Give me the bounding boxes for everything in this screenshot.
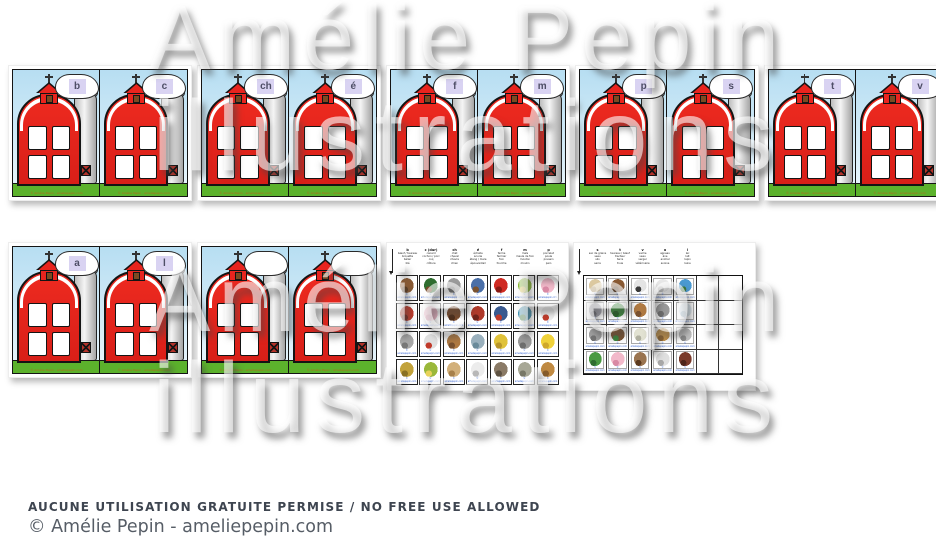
card-copyright: © Amélie Pepin - ameliepepin.com bbox=[289, 368, 376, 372]
barn-letter-card: f © Amélie Pepin - ameliepepin.com bbox=[390, 69, 479, 197]
picture-copyright: © ameliepepin.com bbox=[514, 293, 534, 299]
picture-cell: © ameliepepin.com bbox=[584, 350, 607, 375]
weathervane-icon bbox=[237, 74, 239, 83]
cloud-icon: ch bbox=[244, 74, 288, 99]
barn-letter-card: a © Amélie Pepin - ameliepepin.com bbox=[12, 246, 101, 374]
sound-word: vétérinaire bbox=[631, 262, 654, 265]
window bbox=[328, 303, 347, 327]
picture-cell: © ameliepepin.com bbox=[466, 303, 488, 329]
barn-icon bbox=[395, 94, 459, 186]
picture-cell: © ameliepepin.com bbox=[584, 325, 607, 350]
window bbox=[139, 332, 158, 356]
picture-cell: © ameliepepin.com bbox=[490, 331, 512, 357]
letter-card-page: p © Amélie Pepin - ameliepepin.com s © A… bbox=[575, 65, 759, 201]
barn-letter-card: l © Amélie Pepin - ameliepepin.com bbox=[99, 246, 188, 374]
barn-icon bbox=[773, 94, 837, 186]
picture-copyright: © ameliepepin.com bbox=[420, 321, 440, 327]
cupola-window bbox=[133, 272, 140, 280]
barn-icon bbox=[206, 94, 270, 186]
picture-cell: © ameliepepin.com bbox=[537, 303, 559, 329]
cupola-wall bbox=[229, 93, 247, 104]
cupola-window bbox=[700, 95, 707, 103]
author-credit: © Amélie Pepin - ameliepepin.com bbox=[28, 517, 540, 537]
picture-cell: © ameliepepin.com bbox=[674, 325, 697, 350]
letter-chip: p bbox=[635, 79, 652, 94]
letter-chip: m bbox=[534, 79, 551, 94]
empty-cell bbox=[719, 301, 742, 326]
empty-cell bbox=[697, 325, 720, 350]
window bbox=[52, 303, 71, 327]
picture-copyright: © ameliepepin.com bbox=[629, 366, 651, 372]
empty-cell bbox=[697, 276, 720, 301]
letter-chip: t bbox=[824, 79, 841, 94]
window bbox=[682, 126, 701, 150]
picture-cell: © ameliepepin.com bbox=[674, 301, 697, 326]
picture-cell: © ameliepepin.com bbox=[629, 350, 652, 375]
barn-windows bbox=[406, 126, 448, 179]
sound-column-header: chchatchevalchèvrechien bbox=[443, 248, 467, 271]
barn-windows bbox=[784, 126, 826, 179]
window bbox=[115, 303, 134, 327]
cloud-icon: f bbox=[433, 74, 477, 99]
barn-icon bbox=[293, 271, 357, 363]
sound-word: blé bbox=[396, 262, 420, 265]
activity-sheets-row: a © Amélie Pepin - ameliepepin.com l © A… bbox=[8, 242, 756, 391]
silo-hatch bbox=[924, 165, 934, 176]
card-copyright: © Amélie Pepin - ameliepepin.com bbox=[391, 191, 478, 195]
window bbox=[304, 155, 323, 179]
cloud-icon: l bbox=[142, 251, 186, 276]
cloud-icon: p bbox=[622, 74, 666, 99]
letter-chip: s bbox=[723, 79, 740, 94]
empty-cell bbox=[697, 350, 720, 375]
cloud-icon: a bbox=[55, 251, 99, 276]
picture-cell: © ameliepepin.com bbox=[396, 359, 418, 385]
picture-cell: © ameliepepin.com bbox=[674, 350, 697, 375]
picture-copyright: © ameliepepin.com bbox=[538, 349, 558, 355]
window bbox=[139, 126, 158, 150]
barn-icon bbox=[104, 94, 168, 186]
card-copyright: © Amélie Pepin - ameliepepin.com bbox=[289, 191, 376, 195]
cupola-wall bbox=[229, 270, 247, 281]
picture-cell: © ameliepepin.com bbox=[419, 303, 441, 329]
cupola-wall bbox=[40, 270, 58, 281]
silo-hatch bbox=[168, 165, 178, 176]
cupola-wall bbox=[607, 93, 625, 104]
empty-cell bbox=[697, 301, 720, 326]
letter-chip: l bbox=[156, 256, 173, 271]
card-copyright: © Amélie Pepin - ameliepepin.com bbox=[580, 191, 667, 195]
window bbox=[28, 155, 47, 179]
window bbox=[217, 155, 236, 179]
letter-chip: b bbox=[69, 79, 86, 94]
barn-windows bbox=[595, 126, 637, 179]
window bbox=[115, 155, 134, 179]
letter-chip: é bbox=[345, 79, 362, 94]
sound-word: serre bbox=[586, 262, 609, 265]
picture-cell: © ameliepepin.com bbox=[629, 325, 652, 350]
sound-column-header: vvacheveauvergervétérinaire bbox=[631, 248, 654, 271]
letter-chip: c bbox=[156, 79, 173, 94]
picture-cell: © ameliepepin.com bbox=[396, 275, 418, 301]
cloud-icon: t bbox=[811, 74, 855, 99]
window bbox=[28, 126, 47, 150]
picture-cell: © ameliepepin.com bbox=[652, 276, 675, 301]
letter-chip: v bbox=[912, 79, 929, 94]
window bbox=[217, 303, 236, 327]
cupola-wall bbox=[316, 270, 334, 281]
letter-card-page: t © Amélie Pepin - ameliepepin.com v © A… bbox=[764, 65, 936, 201]
barn-letter-card: © Amélie Pepin - ameliepepin.com bbox=[288, 246, 377, 374]
sound-word: laine bbox=[676, 262, 699, 265]
barn-windows bbox=[217, 126, 259, 179]
picture-copyright: © ameliepepin.com bbox=[538, 293, 558, 299]
window bbox=[807, 126, 826, 150]
sound-word: épouvantail bbox=[466, 262, 490, 265]
sound-column-header: mmaïsmeule de foinmoutonmoulin bbox=[513, 248, 537, 271]
picture-cell: © ameliepepin.com bbox=[419, 275, 441, 301]
picture-copyright: © ameliepepin.com bbox=[514, 321, 534, 327]
barn-windows bbox=[493, 126, 535, 179]
window bbox=[895, 126, 914, 150]
picture-cell: © ameliepepin.com bbox=[584, 276, 607, 301]
barn-icon bbox=[860, 94, 924, 186]
sound-column-header: ééchelleécurieétang / mareépouvantail bbox=[466, 248, 490, 271]
window bbox=[217, 332, 236, 356]
letter-chip: f bbox=[446, 79, 463, 94]
barn-letter-card: é © Amélie Pepin - ameliepepin.com bbox=[288, 69, 377, 197]
picture-cell: © ameliepepin.com bbox=[513, 331, 535, 357]
picture-copyright: © ameliepepin.com bbox=[584, 293, 606, 299]
barn-icon bbox=[293, 94, 357, 186]
picture-copyright: © ameliepepin.com bbox=[674, 342, 696, 348]
window bbox=[240, 155, 259, 179]
cut-mark-icon bbox=[392, 249, 397, 273]
cupola-window bbox=[322, 272, 329, 280]
window bbox=[240, 126, 259, 150]
window bbox=[871, 126, 890, 150]
cloud-icon: m bbox=[520, 74, 564, 99]
sound-word: clôture bbox=[419, 262, 443, 265]
cupola-window bbox=[424, 95, 431, 103]
picture-copyright: © ameliepepin.com bbox=[397, 377, 417, 383]
barn-windows bbox=[682, 126, 724, 179]
window bbox=[618, 155, 637, 179]
cupola-window bbox=[235, 95, 242, 103]
sound-columns-header: bbœuf / taureaubrouettebélierbléc (dur)c… bbox=[396, 248, 568, 271]
window bbox=[784, 155, 803, 179]
cut-mark-icon bbox=[579, 249, 584, 273]
barn-windows bbox=[304, 126, 346, 179]
picture-copyright: © ameliepepin.com bbox=[467, 377, 487, 383]
window bbox=[52, 126, 71, 150]
picture-copyright: © ameliepepin.com bbox=[584, 317, 606, 323]
window bbox=[595, 126, 614, 150]
window bbox=[493, 155, 512, 179]
weathervane-icon bbox=[702, 74, 704, 83]
picture-copyright: © ameliepepin.com bbox=[629, 342, 651, 348]
window bbox=[895, 155, 914, 179]
barn-icon bbox=[17, 94, 81, 186]
card-copyright: © Amélie Pepin - ameliepepin.com bbox=[202, 368, 289, 372]
picture-cell: © ameliepepin.com bbox=[490, 275, 512, 301]
picture-cell: © ameliepepin.com bbox=[396, 303, 418, 329]
picture-copyright: © ameliepepin.com bbox=[584, 366, 606, 372]
window bbox=[706, 155, 725, 179]
letter-card-page: b © Amélie Pepin - ameliepepin.com c © A… bbox=[8, 65, 192, 201]
barn-windows bbox=[115, 303, 157, 356]
window bbox=[240, 303, 259, 327]
picture-cell: © ameliepepin.com bbox=[419, 359, 441, 385]
cupola-window bbox=[46, 272, 53, 280]
bingo-grid-sheet: ssac de grainsseausiloserrettaureau / bœ… bbox=[573, 242, 756, 391]
picture-copyright: © ameliepepin.com bbox=[467, 321, 487, 327]
cupola-wall bbox=[418, 93, 436, 104]
barn-letter-card: s © Amélie Pepin - ameliepepin.com bbox=[666, 69, 755, 197]
cupola-window bbox=[889, 95, 896, 103]
weathervane-icon bbox=[426, 74, 428, 83]
cupola-wall bbox=[796, 93, 814, 104]
picture-cell: © ameliepepin.com bbox=[629, 276, 652, 301]
picture-copyright: © ameliepepin.com bbox=[491, 321, 511, 327]
picture-cell: © ameliepepin.com bbox=[490, 359, 512, 385]
sound-word: truie bbox=[609, 262, 632, 265]
silo-hatch bbox=[269, 165, 279, 176]
picture-cell: © ameliepepin.com bbox=[513, 359, 535, 385]
picture-copyright: © ameliepepin.com bbox=[514, 377, 534, 383]
cupola-wall bbox=[316, 93, 334, 104]
picture-cell: © ameliepepin.com bbox=[607, 276, 630, 301]
picture-cell: © ameliepepin.com bbox=[537, 359, 559, 385]
window bbox=[429, 126, 448, 150]
word-list-sheet: bbœuf / taureaubrouettebélierbléc (dur)c… bbox=[386, 242, 569, 391]
picture-copyright: © ameliepepin.com bbox=[584, 342, 606, 348]
empty-cell bbox=[719, 325, 742, 350]
window bbox=[328, 155, 347, 179]
card-copyright: © Amélie Pepin - ameliepepin.com bbox=[478, 191, 565, 195]
silo-hatch bbox=[81, 342, 91, 353]
card-copyright: © Amélie Pepin - ameliepepin.com bbox=[13, 368, 100, 372]
sound-column-header: pporceletpoulepoussinpain bbox=[537, 248, 561, 271]
cloud-icon: v bbox=[898, 74, 936, 99]
card-copyright: © Amélie Pepin - ameliepepin.com bbox=[100, 191, 187, 195]
cupola-wall bbox=[505, 93, 523, 104]
window bbox=[807, 155, 826, 179]
barn-windows bbox=[28, 303, 70, 356]
picture-cell: © ameliepepin.com bbox=[466, 359, 488, 385]
picture-cell: © ameliepepin.com bbox=[443, 303, 465, 329]
barn-icon bbox=[206, 271, 270, 363]
picture-cell: © ameliepepin.com bbox=[419, 331, 441, 357]
picture-copyright: © ameliepepin.com bbox=[629, 293, 651, 299]
cupola-window bbox=[46, 95, 53, 103]
sound-word: avoine bbox=[654, 262, 677, 265]
picture-copyright: © ameliepepin.com bbox=[444, 321, 464, 327]
letter-cards-row: b © Amélie Pepin - ameliepepin.com c © A… bbox=[8, 65, 936, 201]
picture-grid: © ameliepepin.com© ameliepepin.com© amel… bbox=[387, 275, 568, 385]
window bbox=[328, 126, 347, 150]
letter-card-page: f © Amélie Pepin - ameliepepin.com m © A… bbox=[386, 65, 570, 201]
cupola-wall bbox=[127, 93, 145, 104]
picture-cell: © ameliepepin.com bbox=[513, 303, 535, 329]
weathervane-icon bbox=[324, 251, 326, 260]
weathervane-icon bbox=[615, 74, 617, 83]
sound-column-header: aagneauâneanimalavoine bbox=[654, 248, 677, 271]
sound-column-header: llaclaitlapinlaine bbox=[676, 248, 699, 271]
window bbox=[304, 332, 323, 356]
cloud-icon: c bbox=[142, 74, 186, 99]
window bbox=[115, 332, 134, 356]
weathervane-icon bbox=[135, 251, 137, 260]
window bbox=[52, 332, 71, 356]
picture-cell: © ameliepepin.com bbox=[584, 301, 607, 326]
picture-copyright: © ameliepepin.com bbox=[467, 349, 487, 355]
picture-copyright: © ameliepepin.com bbox=[397, 293, 417, 299]
barn-icon bbox=[482, 94, 546, 186]
window bbox=[871, 155, 890, 179]
picture-copyright: © ameliepepin.com bbox=[514, 349, 534, 355]
barn-windows bbox=[115, 126, 157, 179]
sound-word: chien bbox=[443, 262, 467, 265]
barn-letter-card: t © Amélie Pepin - ameliepepin.com bbox=[768, 69, 857, 197]
sound-column-header: ssac de grainsseausiloserre bbox=[586, 248, 609, 271]
weathervane-icon bbox=[804, 74, 806, 83]
silo-hatch bbox=[735, 165, 745, 176]
weathervane-icon bbox=[48, 74, 50, 83]
picture-copyright: © ameliepepin.com bbox=[444, 349, 464, 355]
letter-card-page: a © Amélie Pepin - ameliepepin.com l © A… bbox=[8, 242, 192, 378]
preview-canvas: b © Amélie Pepin - ameliepepin.com c © A… bbox=[0, 0, 936, 550]
picture-copyright: © ameliepepin.com bbox=[629, 317, 651, 323]
barn-letter-card: © Amélie Pepin - ameliepepin.com bbox=[201, 246, 290, 374]
window bbox=[682, 155, 701, 179]
barn-letter-card: p © Amélie Pepin - ameliepepin.com bbox=[579, 69, 668, 197]
silo-hatch bbox=[269, 342, 279, 353]
card-copyright: © Amélie Pepin - ameliepepin.com bbox=[667, 191, 754, 195]
footer: AUCUNE UTILISATION GRATUITE PERMISE / NO… bbox=[28, 500, 540, 537]
window bbox=[139, 303, 158, 327]
picture-copyright: © ameliepepin.com bbox=[652, 293, 674, 299]
weathervane-icon bbox=[48, 251, 50, 260]
picture-cell: © ameliepepin.com bbox=[537, 275, 559, 301]
window bbox=[240, 332, 259, 356]
picture-copyright: © ameliepepin.com bbox=[652, 317, 674, 323]
window bbox=[406, 126, 425, 150]
barn-icon bbox=[104, 271, 168, 363]
barn-letter-card: c © Amélie Pepin - ameliepepin.com bbox=[99, 69, 188, 197]
letter-chip: a bbox=[69, 256, 86, 271]
cupola-window bbox=[802, 95, 809, 103]
cupola-wall bbox=[883, 93, 901, 104]
sound-word: pain bbox=[537, 262, 561, 265]
weathervane-icon bbox=[135, 74, 137, 83]
barn-windows bbox=[871, 126, 913, 179]
silo-hatch bbox=[647, 165, 657, 176]
window bbox=[304, 303, 323, 327]
window bbox=[429, 155, 448, 179]
picture-cell: © ameliepepin.com bbox=[674, 276, 697, 301]
picture-copyright: © ameliepepin.com bbox=[491, 377, 511, 383]
window bbox=[517, 155, 536, 179]
cupola-window bbox=[322, 95, 329, 103]
picture-cell: © ameliepepin.com bbox=[466, 331, 488, 357]
weathervane-icon bbox=[513, 74, 515, 83]
window bbox=[28, 332, 47, 356]
picture-copyright: © ameliepepin.com bbox=[491, 293, 511, 299]
sound-column-header: bbœuf / taureaubrouettebélierblé bbox=[396, 248, 420, 271]
silo-hatch bbox=[168, 342, 178, 353]
cupola-window bbox=[511, 95, 518, 103]
picture-copyright: © ameliepepin.com bbox=[420, 377, 440, 383]
usage-notice: AUCUNE UTILISATION GRATUITE PERMISE / NO… bbox=[28, 500, 540, 514]
cupola-wall bbox=[127, 270, 145, 281]
picture-copyright: © ameliepepin.com bbox=[444, 293, 464, 299]
picture-copyright: © ameliepepin.com bbox=[607, 293, 629, 299]
window bbox=[784, 126, 803, 150]
window bbox=[28, 303, 47, 327]
silo-hatch bbox=[357, 165, 367, 176]
picture-cell: © ameliepepin.com bbox=[652, 301, 675, 326]
barn-icon bbox=[671, 94, 735, 186]
window bbox=[493, 126, 512, 150]
window bbox=[328, 332, 347, 356]
cupola-wall bbox=[694, 93, 712, 104]
barn-windows bbox=[28, 126, 70, 179]
silo-hatch bbox=[81, 165, 91, 176]
window bbox=[52, 155, 71, 179]
cloud-icon bbox=[244, 251, 288, 276]
cloud-icon: s bbox=[709, 74, 753, 99]
window bbox=[706, 126, 725, 150]
picture-copyright: © ameliepepin.com bbox=[607, 366, 629, 372]
picture-copyright: © ameliepepin.com bbox=[420, 293, 440, 299]
picture-cell: © ameliepepin.com bbox=[513, 275, 535, 301]
picture-cell: © ameliepepin.com bbox=[629, 301, 652, 326]
picture-copyright: © ameliepepin.com bbox=[652, 342, 674, 348]
sound-column-header: ffermefermierfoinfourche bbox=[490, 248, 514, 271]
cupola-window bbox=[235, 272, 242, 280]
picture-cell: © ameliepepin.com bbox=[607, 301, 630, 326]
picture-cell: © ameliepepin.com bbox=[607, 325, 630, 350]
picture-copyright: © ameliepepin.com bbox=[607, 342, 629, 348]
picture-copyright: © ameliepepin.com bbox=[538, 377, 558, 383]
window bbox=[517, 126, 536, 150]
cloud-icon: b bbox=[55, 74, 99, 99]
cloud-icon bbox=[331, 251, 375, 276]
barn-letter-card: ch © Amélie Pepin - ameliepepin.com bbox=[201, 69, 290, 197]
sound-columns-header: ssac de grainsseausiloserrettaureau / bœ… bbox=[586, 248, 755, 271]
card-copyright: © Amélie Pepin - ameliepepin.com bbox=[769, 191, 856, 195]
picture-copyright: © ameliepepin.com bbox=[674, 317, 696, 323]
card-copyright: © Amélie Pepin - ameliepepin.com bbox=[100, 368, 187, 372]
silo-hatch bbox=[836, 165, 846, 176]
cupola-wall bbox=[40, 93, 58, 104]
empty-cell bbox=[719, 350, 742, 375]
picture-copyright: © ameliepepin.com bbox=[491, 349, 511, 355]
empty-cell bbox=[719, 276, 742, 301]
picture-copyright: © ameliepepin.com bbox=[397, 349, 417, 355]
silo-hatch bbox=[546, 165, 556, 176]
weathervane-icon bbox=[891, 74, 893, 83]
picture-cell: © ameliepepin.com bbox=[607, 350, 630, 375]
picture-cell: © ameliepepin.com bbox=[537, 331, 559, 357]
weathervane-icon bbox=[324, 74, 326, 83]
silo-hatch bbox=[458, 165, 468, 176]
letter-chip: ch bbox=[257, 79, 274, 94]
window bbox=[304, 126, 323, 150]
barn-letter-card: b © Amélie Pepin - ameliepepin.com bbox=[12, 69, 101, 197]
picture-copyright: © ameliepepin.com bbox=[467, 293, 487, 299]
